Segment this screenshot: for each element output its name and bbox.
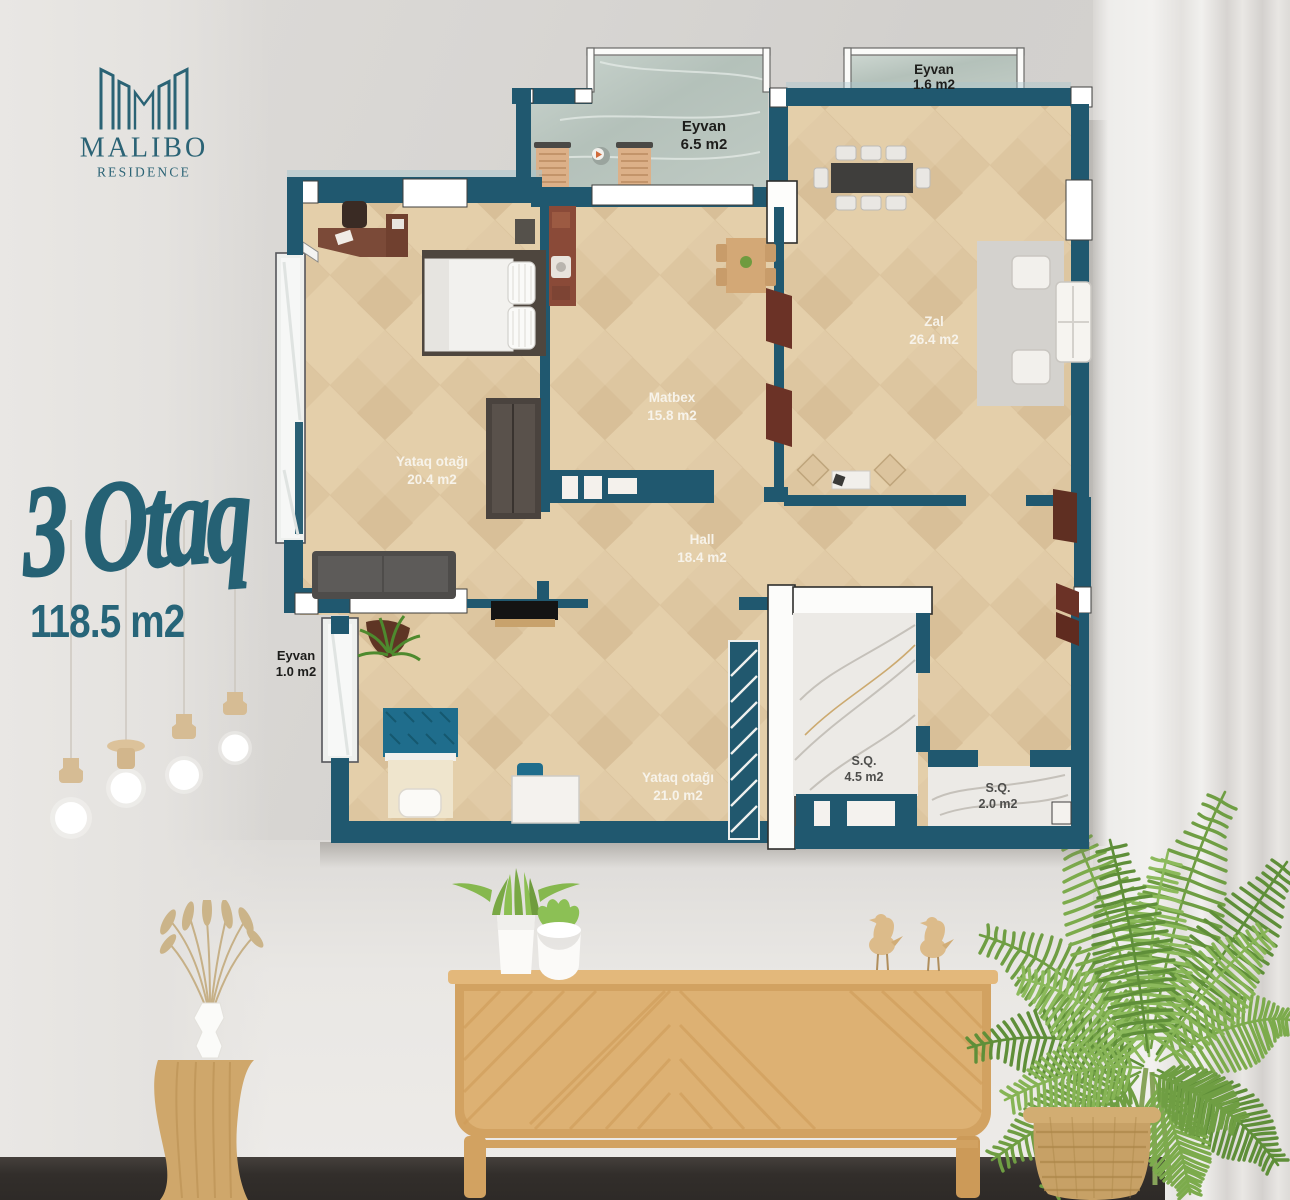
svg-text:21.0 m2: 21.0 m2 — [653, 788, 703, 803]
svg-text:15.8 m2: 15.8 m2 — [647, 408, 697, 423]
svg-text:20.4 m2: 20.4 m2 — [407, 472, 457, 487]
svg-text:Matbex: Matbex — [649, 390, 696, 405]
svg-text:Eyvan: Eyvan — [914, 62, 954, 77]
svg-text:MALIBO: MALIBO — [80, 133, 208, 164]
svg-text:4.5 m2: 4.5 m2 — [845, 770, 884, 784]
svg-text:Zal: Zal — [924, 314, 944, 329]
svg-text:Hall: Hall — [690, 532, 715, 547]
svg-text:Yataq otağı: Yataq otağı — [396, 454, 468, 469]
svg-text:1.6 m2: 1.6 m2 — [913, 77, 955, 92]
svg-text:2.0 m2: 2.0 m2 — [979, 797, 1018, 811]
svg-text:Yataq otağı: Yataq otağı — [642, 770, 714, 785]
svg-text:RESIDENCE: RESIDENCE — [97, 165, 191, 180]
svg-text:6.5 m2: 6.5 m2 — [681, 136, 728, 153]
svg-text:Eyvan: Eyvan — [277, 648, 315, 663]
svg-text:1.0 m2: 1.0 m2 — [276, 664, 316, 679]
svg-text:Eyvan: Eyvan — [682, 118, 726, 135]
svg-text:26.4 m2: 26.4 m2 — [909, 332, 959, 347]
svg-text:S.Q.: S.Q. — [985, 781, 1010, 795]
svg-text:18.4 m2: 18.4 m2 — [677, 550, 727, 565]
svg-text:S.Q.: S.Q. — [851, 754, 876, 768]
